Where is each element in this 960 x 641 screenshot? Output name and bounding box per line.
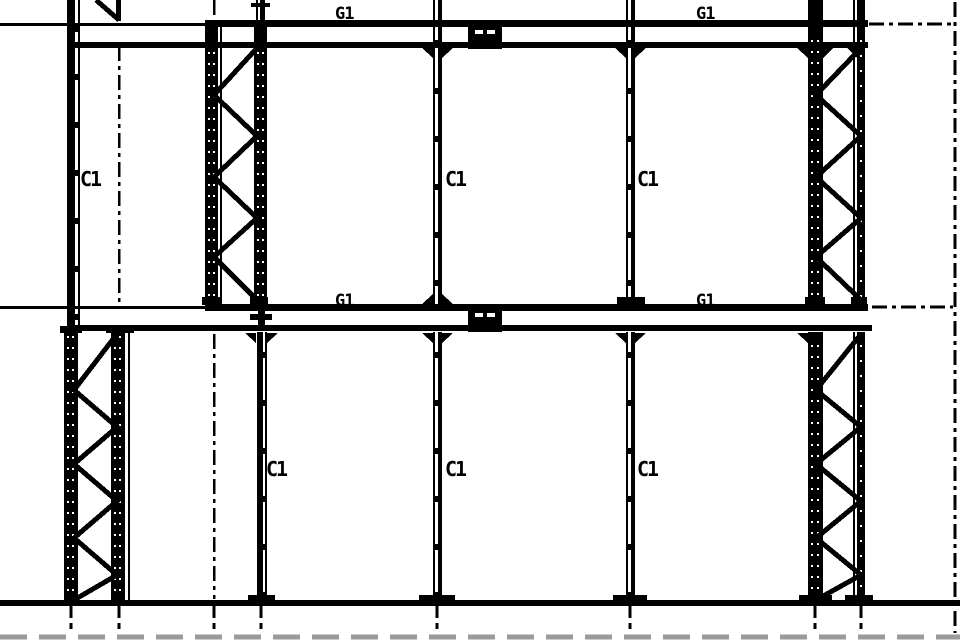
column-e-haunch-below-mid-right bbox=[442, 333, 453, 343]
column-e-haunch-below-mid-left bbox=[422, 333, 433, 343]
column-e-upper-web-line bbox=[433, 21, 435, 311]
girder-top-thin-left-line bbox=[0, 23, 207, 26]
column-h-base-pad bbox=[845, 595, 873, 601]
column-e-haunch-above-mid-left bbox=[422, 294, 433, 304]
column-f-haunch-top-right bbox=[635, 48, 646, 58]
column-f-haunch-below-mid-right bbox=[635, 333, 646, 343]
column-h-lower-web-line bbox=[853, 332, 855, 602]
column-d-upper-chord bbox=[254, 21, 267, 311]
girder-label: G1 bbox=[335, 291, 354, 311]
girder-top-top-flange bbox=[205, 20, 868, 27]
girder-end-haunch-mid bbox=[797, 333, 808, 343]
column-e-haunch-top-right bbox=[442, 48, 453, 58]
splice-plate bbox=[468, 21, 502, 49]
column-label: C1 bbox=[445, 457, 467, 481]
splice-bolt-mark bbox=[475, 313, 483, 317]
column-line-h bbox=[845, 0, 873, 633]
column-f-upper-web-line bbox=[626, 21, 628, 311]
column-g-top-stub bbox=[808, 0, 823, 21]
girder-mid-splice bbox=[468, 304, 502, 332]
column-e-top-stub-thin bbox=[433, 0, 435, 21]
girder-label: G1 bbox=[335, 4, 354, 24]
girder-label: G1 bbox=[696, 4, 715, 24]
column-b-flange-line bbox=[128, 330, 130, 602]
column-f-top-stub-thin bbox=[626, 0, 628, 21]
column-d-splice-cross-h bbox=[250, 314, 272, 320]
column-e-top-stub bbox=[438, 0, 442, 21]
column-f-base-pad bbox=[613, 595, 647, 601]
column-h-upper-web-line bbox=[853, 21, 855, 311]
column-line-b bbox=[96, 0, 134, 633]
framing-elevation-drawing: G1 G1 G1 G1 C1 C1 C1 C1 C1 C1 bbox=[0, 0, 960, 641]
column-line-e bbox=[419, 0, 455, 633]
column-label: C1 bbox=[266, 457, 288, 481]
column-a-upper-flange-line bbox=[78, 0, 80, 332]
column-line-f bbox=[613, 0, 647, 633]
splice-plate bbox=[468, 304, 502, 332]
bracing-upper-left-bay bbox=[214, 48, 257, 300]
column-d-haunch-right bbox=[267, 333, 278, 343]
brace-above-top-girder bbox=[96, 0, 119, 20]
column-h-top-stub bbox=[857, 0, 865, 21]
column-c-bearing-pad bbox=[202, 297, 220, 305]
girder-top-splice bbox=[468, 21, 502, 49]
column-b-lower-chord bbox=[111, 326, 125, 602]
girder-mid-thin-left-line bbox=[0, 306, 207, 309]
column-f-top-stub bbox=[631, 0, 635, 21]
column-d-top-plate-mark bbox=[251, 3, 270, 7]
splice-bolt-mark bbox=[475, 30, 483, 34]
column-label: C1 bbox=[637, 457, 659, 481]
column-f-haunch-top-left bbox=[615, 48, 626, 58]
column-f-lower-shaft bbox=[631, 332, 635, 602]
column-label: C1 bbox=[80, 167, 102, 191]
column-g-bearing-pad bbox=[805, 297, 825, 305]
column-h-top-stub-thin bbox=[853, 0, 855, 21]
girder-label: G1 bbox=[696, 291, 715, 311]
column-e-haunch-above-mid-right bbox=[442, 294, 453, 304]
column-e-lower-web-line bbox=[433, 332, 435, 602]
column-d-haunch-left bbox=[245, 333, 256, 343]
column-g-haunch-inner bbox=[823, 48, 833, 58]
column-label: C1 bbox=[445, 167, 467, 191]
girder-end-haunch-top bbox=[797, 48, 808, 58]
splice-bolt-mark bbox=[487, 313, 495, 317]
column-e-lower-shaft bbox=[438, 332, 442, 602]
splice-bolt-mark bbox=[487, 30, 495, 34]
drawing-svg: G1 G1 G1 G1 C1 C1 C1 C1 C1 C1 bbox=[0, 0, 960, 641]
column-d-base-pad bbox=[248, 595, 275, 601]
column-line-d bbox=[245, 0, 278, 633]
column-d-lower-shaft bbox=[257, 332, 263, 602]
column-g-upper-chord bbox=[808, 21, 823, 311]
column-c-upper-chord bbox=[205, 21, 218, 311]
column-h-upper-chord bbox=[857, 21, 865, 311]
column-f-lower-web-line bbox=[626, 332, 628, 602]
bracing-lower-left-bay bbox=[74, 334, 117, 600]
column-e-upper-shaft bbox=[438, 21, 442, 311]
column-e-haunch-top-left bbox=[422, 48, 433, 58]
column-f-bearing-pad bbox=[617, 297, 645, 305]
column-label: C1 bbox=[637, 167, 659, 191]
column-f-upper-shaft bbox=[631, 21, 635, 311]
column-a-upper-shaft bbox=[67, 0, 75, 332]
column-e-base-pad bbox=[419, 595, 455, 601]
girder-mid-top-flange bbox=[205, 304, 868, 311]
column-f-haunch-below-mid-left bbox=[615, 333, 626, 343]
